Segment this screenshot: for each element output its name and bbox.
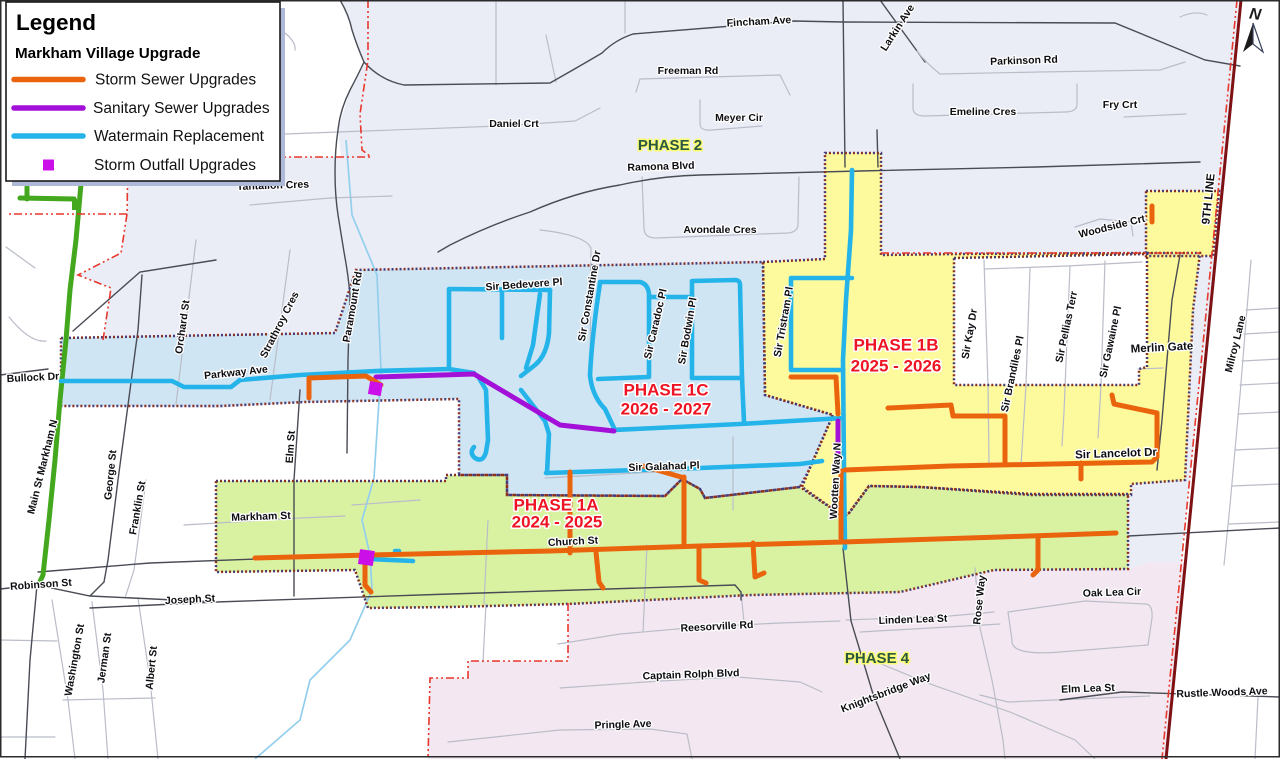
svg-text:Fry Crt: Fry Crt: [1103, 99, 1138, 111]
svg-text:PHASE 4: PHASE 4: [845, 650, 910, 667]
svg-text:Meyer Cir: Meyer Cir: [715, 112, 763, 124]
svg-text:2024 - 2025: 2024 - 2025: [512, 512, 603, 531]
svg-text:Freeman Rd: Freeman Rd: [658, 65, 719, 77]
svg-text:Watermain Replacement: Watermain Replacement: [94, 128, 265, 145]
svg-text:Oak Lea Cir: Oak Lea Cir: [1083, 586, 1142, 600]
svg-text:Emeline Cres: Emeline Cres: [950, 106, 1017, 118]
svg-text:PHASE 2: PHASE 2: [638, 137, 702, 154]
svg-text:Parkinson Rd: Parkinson Rd: [990, 54, 1058, 68]
svg-text:Storm Sewer Upgrades: Storm Sewer Upgrades: [95, 72, 256, 89]
svg-text:Pringle Ave: Pringle Ave: [594, 718, 652, 732]
svg-text:Sir Galahad Pl: Sir Galahad Pl: [628, 460, 700, 474]
svg-text:2025 - 2026: 2025 - 2026: [851, 356, 942, 375]
svg-text:PHASE 1C: PHASE 1C: [623, 380, 708, 399]
svg-text:Avondale Cres: Avondale Cres: [683, 224, 756, 236]
svg-text:2026 - 2027: 2026 - 2027: [621, 399, 712, 418]
svg-text:Storm Outfall Upgrades: Storm Outfall Upgrades: [94, 157, 256, 174]
svg-text:Markham St: Markham St: [231, 510, 291, 524]
svg-text:Elm St: Elm St: [284, 430, 298, 464]
svg-text:PHASE 1B: PHASE 1B: [853, 335, 938, 354]
svg-text:Linden Lea St: Linden Lea St: [878, 613, 948, 627]
svg-text:Markham Village Upgrade: Markham Village Upgrade: [15, 45, 200, 62]
svg-text:Ramona Blvd: Ramona Blvd: [627, 160, 694, 174]
svg-text:Daniel Crt: Daniel Crt: [489, 118, 539, 130]
svg-text:Legend: Legend: [16, 10, 96, 35]
svg-text:Elm Lea St: Elm Lea St: [1061, 682, 1116, 696]
svg-text:Sanitary Sewer Upgrades: Sanitary Sewer Upgrades: [93, 100, 270, 117]
